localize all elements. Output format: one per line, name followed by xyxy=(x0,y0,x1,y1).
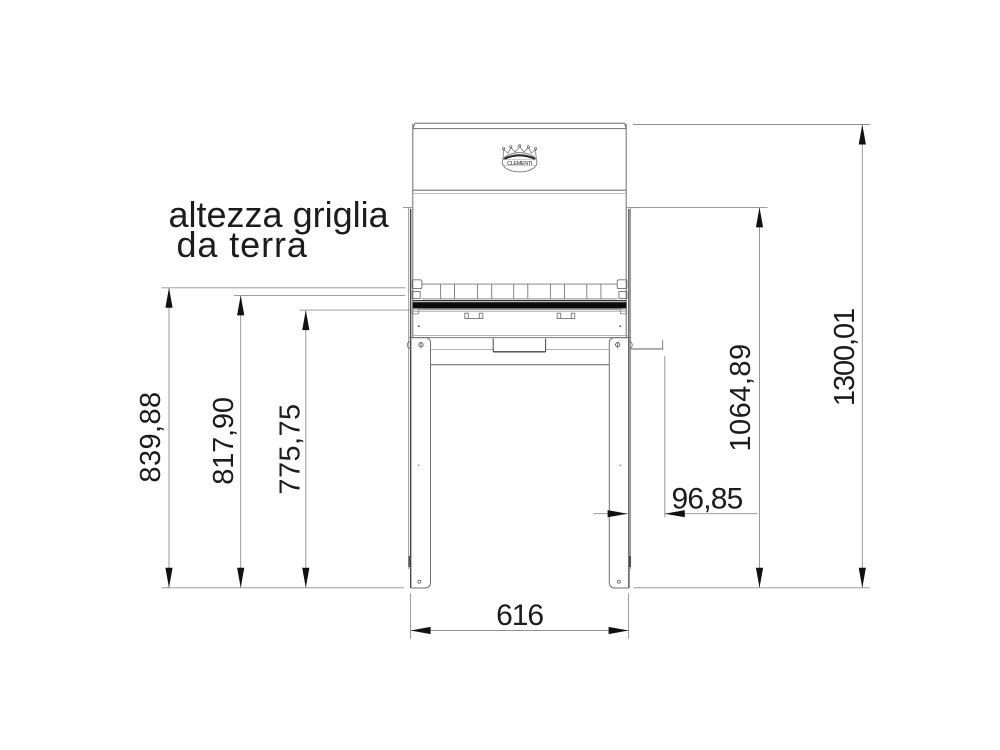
svg-text:1064,89: 1064,89 xyxy=(725,343,757,451)
svg-text:775,75: 775,75 xyxy=(275,403,307,494)
svg-text:CLEMENTI: CLEMENTI xyxy=(507,161,532,167)
svg-text:da terra: da terra xyxy=(177,224,308,265)
svg-text:817,90: 817,90 xyxy=(208,397,240,485)
svg-text:96,85: 96,85 xyxy=(671,483,742,516)
svg-text:616: 616 xyxy=(496,599,543,632)
svg-text:839,88: 839,88 xyxy=(135,391,167,482)
svg-text:1300,01: 1300,01 xyxy=(829,309,861,406)
